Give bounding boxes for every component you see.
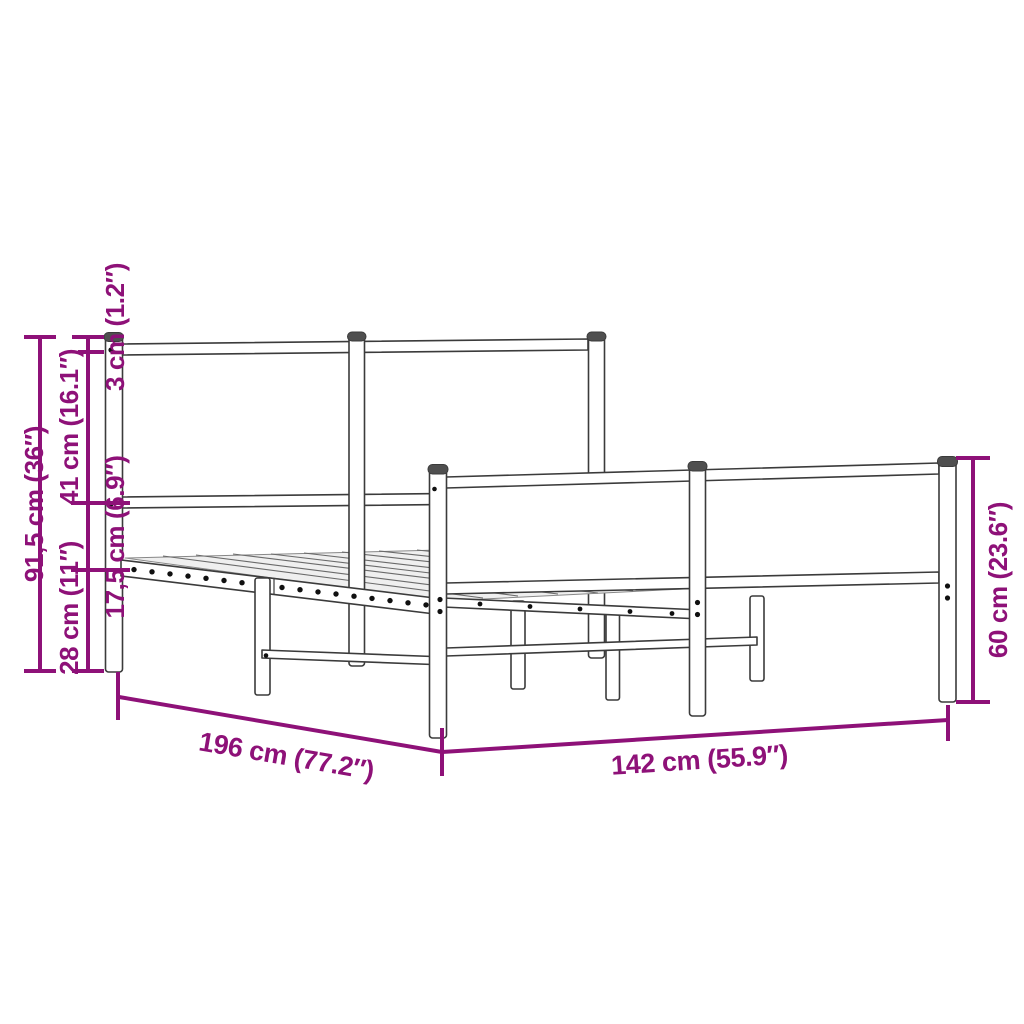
footboard-right-post	[939, 461, 956, 702]
dimension-label-clearance: 28 cm (11″)	[54, 541, 84, 675]
diagram-canvas: 91,5 cm (36″) 41 cm (16.1″) 28 cm (11″) …	[0, 0, 1024, 1024]
dimension-label-top-rail: 3 cm (1.2″)	[100, 263, 130, 391]
center-beam	[443, 598, 701, 619]
support-leg	[255, 578, 270, 695]
footboard-center-post	[690, 466, 706, 716]
dimension-label-width: 142 cm (55.9″)	[610, 739, 789, 780]
headboard-center-post	[349, 336, 365, 666]
bed-frame-dimension-diagram: 91,5 cm (36″) 41 cm (16.1″) 28 cm (11″) …	[0, 0, 1024, 1024]
support-leg	[606, 608, 620, 700]
footboard-left-post-cap	[428, 465, 448, 475]
dimension-label-side-rail: 17,5 cm (6.9″)	[100, 456, 130, 619]
footboard	[108, 347, 957, 738]
footboard-left-post	[430, 469, 447, 738]
dimension-label-total-height: 91,5 cm (36″)	[19, 426, 49, 582]
footboard-center-post-cap	[688, 462, 707, 472]
dimension-label-footboard-height: 60 cm (23.6″)	[983, 502, 1013, 658]
footboard-right-post-cap	[938, 457, 958, 467]
beam-bolt	[264, 653, 269, 658]
headboard-center-post-cap	[348, 332, 367, 341]
bed-frame-drawing	[104, 332, 958, 738]
headboard-right-post-cap	[587, 332, 606, 341]
dimension-label-headboard-section: 41 cm (16.1″)	[54, 349, 84, 505]
